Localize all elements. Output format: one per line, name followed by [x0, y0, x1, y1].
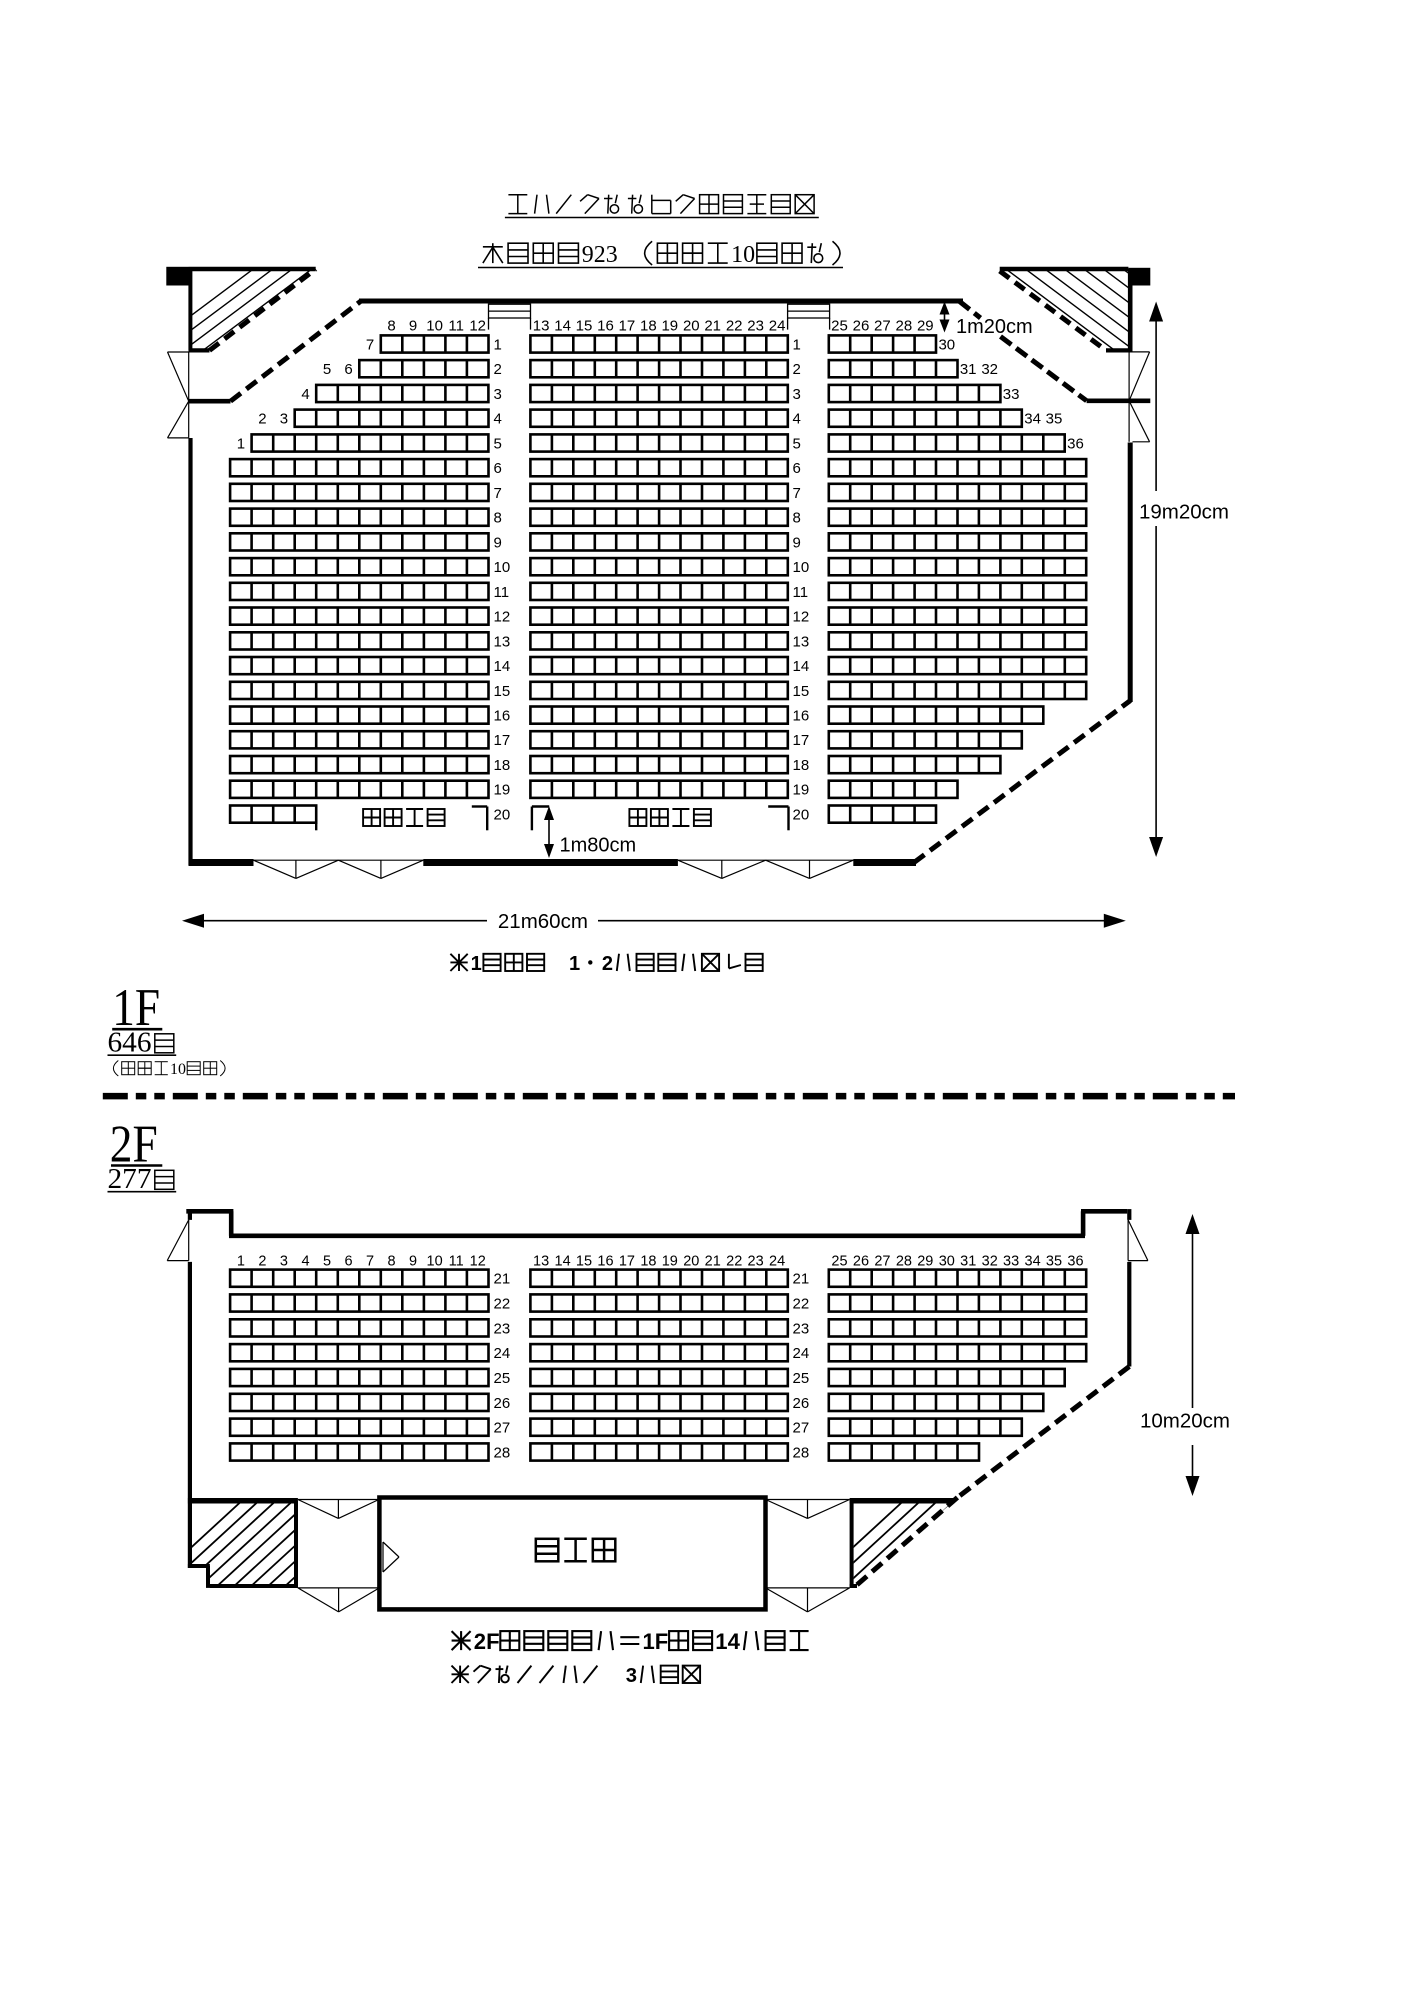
svg-text:26: 26	[494, 1395, 511, 1412]
svg-text:19: 19	[661, 318, 678, 335]
svg-text:30: 30	[938, 336, 955, 353]
svg-text:13: 13	[793, 633, 810, 650]
svg-text:12: 12	[469, 318, 486, 335]
svg-text:27: 27	[494, 1420, 511, 1437]
svg-text:2: 2	[793, 361, 801, 378]
svg-text:1: 1	[237, 435, 245, 452]
svg-text:34: 34	[1025, 1254, 1041, 1270]
svg-text:7: 7	[366, 1254, 374, 1270]
svg-text:36: 36	[1067, 435, 1084, 452]
svg-text:28: 28	[793, 1444, 810, 1461]
svg-text:1m80cm: 1m80cm	[560, 835, 637, 857]
svg-text:33: 33	[1003, 1254, 1019, 1270]
svg-text:25: 25	[831, 1254, 847, 1270]
svg-text:18: 18	[640, 318, 657, 335]
svg-text:21m60cm: 21m60cm	[498, 910, 588, 933]
svg-text:17: 17	[793, 732, 810, 749]
svg-text:30: 30	[939, 1254, 955, 1270]
svg-text:18: 18	[793, 757, 810, 774]
svg-text:5: 5	[793, 435, 801, 452]
svg-text:1: 1	[237, 1254, 245, 1270]
svg-text:7: 7	[793, 485, 801, 502]
svg-text:3: 3	[494, 386, 502, 403]
svg-text:3: 3	[280, 1254, 288, 1270]
svg-text:1: 1	[569, 953, 580, 975]
svg-text:23: 23	[494, 1320, 511, 1337]
svg-text:29: 29	[917, 318, 934, 335]
svg-text:8: 8	[388, 1254, 396, 1270]
svg-text:19: 19	[793, 782, 810, 799]
svg-text:25: 25	[831, 318, 848, 335]
svg-text:11: 11	[449, 1254, 464, 1270]
svg-text:10: 10	[793, 559, 810, 576]
svg-text:21: 21	[705, 1254, 721, 1270]
svg-text:20: 20	[683, 318, 700, 335]
svg-text:10: 10	[426, 318, 443, 335]
svg-text:13: 13	[533, 318, 550, 335]
svg-text:14: 14	[793, 658, 810, 675]
svg-text:31: 31	[960, 1254, 976, 1270]
svg-text:16: 16	[597, 1254, 613, 1270]
svg-text:20: 20	[793, 807, 810, 824]
svg-text:6: 6	[494, 460, 502, 477]
svg-text:7: 7	[366, 336, 374, 353]
svg-text:25: 25	[494, 1370, 511, 1387]
svg-text:18: 18	[640, 1254, 656, 1270]
svg-text:13: 13	[533, 1254, 549, 1270]
svg-text:26: 26	[853, 318, 870, 335]
svg-text:34: 34	[1024, 411, 1041, 428]
svg-text:21: 21	[494, 1271, 511, 1288]
svg-text:2: 2	[258, 1254, 266, 1270]
svg-text:26: 26	[793, 1395, 810, 1412]
svg-text:35: 35	[1046, 411, 1063, 428]
svg-text:27: 27	[874, 318, 891, 335]
svg-text:2F: 2F	[474, 1629, 500, 1654]
svg-text:3: 3	[626, 1665, 637, 1687]
svg-text:20: 20	[683, 1254, 699, 1270]
svg-text:2: 2	[494, 361, 502, 378]
svg-text:24: 24	[769, 1254, 785, 1270]
svg-text:1F: 1F	[643, 1629, 669, 1654]
svg-text:17: 17	[494, 732, 511, 749]
svg-text:7: 7	[494, 485, 502, 502]
svg-text:24: 24	[793, 1345, 810, 1362]
svg-text:17: 17	[619, 318, 636, 335]
svg-text:14: 14	[715, 1629, 740, 1654]
svg-text:21: 21	[704, 318, 721, 335]
svg-text:22: 22	[726, 1254, 742, 1270]
svg-text:24: 24	[769, 318, 786, 335]
svg-text:4: 4	[301, 386, 309, 403]
svg-text:15: 15	[793, 683, 810, 700]
svg-text:11: 11	[793, 584, 809, 601]
svg-text:28: 28	[896, 1254, 912, 1270]
svg-text:9: 9	[409, 318, 417, 335]
svg-text:9: 9	[409, 1254, 417, 1270]
svg-text:13: 13	[494, 633, 511, 650]
svg-text:19: 19	[494, 782, 511, 799]
svg-text:5: 5	[323, 1254, 331, 1270]
svg-text:646: 646	[108, 1028, 152, 1059]
svg-text:12: 12	[793, 609, 810, 626]
svg-text:14: 14	[494, 658, 511, 675]
svg-text:17: 17	[619, 1254, 635, 1270]
svg-text:10: 10	[731, 242, 755, 268]
svg-text:32: 32	[982, 1254, 998, 1270]
svg-text:8: 8	[793, 510, 801, 527]
svg-text:21: 21	[793, 1271, 810, 1288]
svg-text:9: 9	[494, 534, 502, 551]
svg-text:32: 32	[981, 361, 998, 378]
svg-text:33: 33	[1003, 386, 1020, 403]
svg-text:15: 15	[494, 683, 511, 700]
svg-text:1: 1	[793, 336, 801, 353]
svg-text:8: 8	[494, 510, 502, 527]
svg-text:15: 15	[576, 1254, 592, 1270]
svg-text:27: 27	[874, 1254, 890, 1270]
svg-text:19m20cm: 19m20cm	[1139, 501, 1229, 524]
svg-text:36: 36	[1067, 1254, 1083, 1270]
svg-text:19: 19	[662, 1254, 678, 1270]
svg-text:2: 2	[602, 953, 613, 975]
svg-text:11: 11	[448, 318, 464, 335]
svg-text:10: 10	[170, 1061, 186, 1078]
svg-text:10m20cm: 10m20cm	[1140, 1410, 1230, 1433]
svg-text:16: 16	[597, 318, 614, 335]
svg-text:12: 12	[470, 1254, 486, 1270]
svg-text:14: 14	[555, 1254, 571, 1270]
svg-text:3: 3	[793, 386, 801, 403]
svg-text:23: 23	[747, 318, 764, 335]
svg-text:1: 1	[471, 953, 482, 975]
svg-text:6: 6	[344, 1254, 352, 1270]
svg-text:4: 4	[793, 411, 801, 428]
svg-text:5: 5	[494, 435, 502, 452]
svg-text:35: 35	[1046, 1254, 1062, 1270]
svg-text:6: 6	[344, 361, 352, 378]
svg-text:2: 2	[258, 411, 266, 428]
svg-text:10: 10	[427, 1254, 443, 1270]
svg-text:5: 5	[323, 361, 331, 378]
svg-text:1: 1	[494, 336, 502, 353]
svg-text:277: 277	[108, 1164, 152, 1195]
svg-text:3: 3	[280, 411, 288, 428]
svg-text:14: 14	[554, 318, 571, 335]
svg-text:23: 23	[793, 1320, 810, 1337]
svg-text:6: 6	[793, 460, 801, 477]
svg-text:10: 10	[494, 559, 511, 576]
svg-text:20: 20	[494, 807, 511, 824]
svg-text:22: 22	[726, 318, 743, 335]
svg-text:11: 11	[494, 584, 510, 601]
svg-text:4: 4	[494, 411, 502, 428]
svg-text:26: 26	[853, 1254, 869, 1270]
svg-text:29: 29	[917, 1254, 933, 1270]
svg-text:31: 31	[960, 361, 977, 378]
svg-text:25: 25	[793, 1370, 810, 1387]
svg-text:28: 28	[494, 1444, 511, 1461]
svg-text:18: 18	[494, 757, 511, 774]
svg-text:15: 15	[576, 318, 593, 335]
svg-text:24: 24	[494, 1345, 511, 1362]
svg-text:4: 4	[301, 1254, 309, 1270]
svg-text:22: 22	[494, 1295, 511, 1312]
svg-text:923: 923	[582, 242, 618, 268]
svg-text:28: 28	[896, 318, 913, 335]
svg-text:27: 27	[793, 1420, 810, 1437]
svg-text:1m20cm: 1m20cm	[956, 316, 1033, 338]
svg-text:16: 16	[494, 708, 511, 725]
svg-text:23: 23	[748, 1254, 764, 1270]
svg-text:12: 12	[494, 609, 511, 626]
svg-text:22: 22	[793, 1295, 810, 1312]
svg-text:9: 9	[793, 534, 801, 551]
svg-text:16: 16	[793, 708, 810, 725]
svg-text:8: 8	[387, 318, 395, 335]
